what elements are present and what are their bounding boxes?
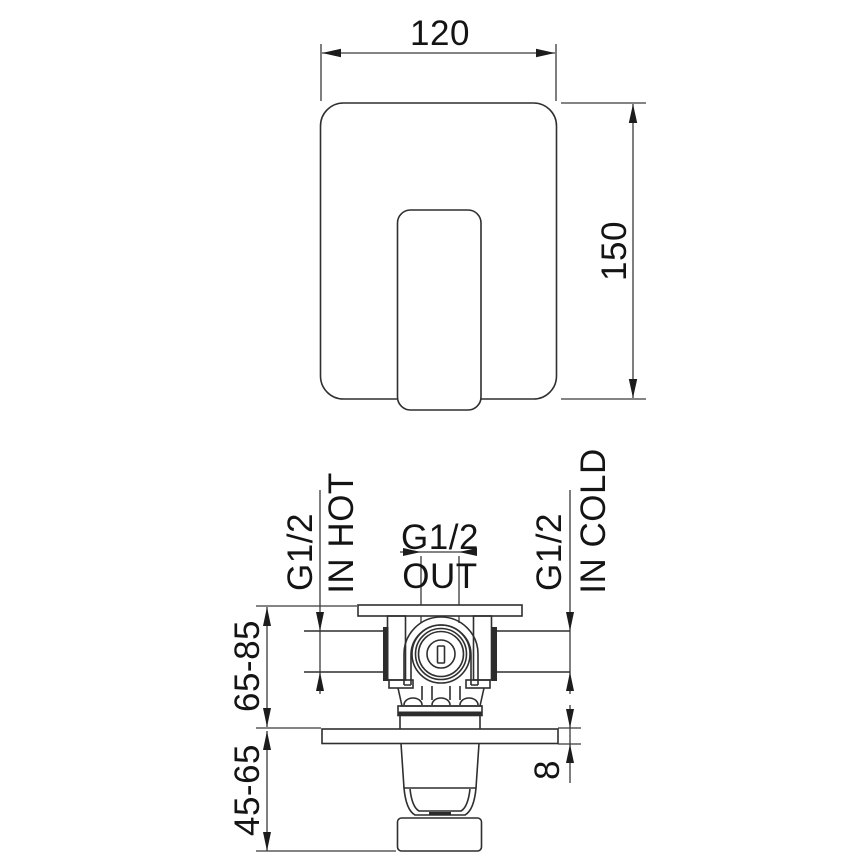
dim-height-arrow-bottom: [629, 379, 637, 398]
install-depth-extension-lines: [256, 606, 357, 728]
technical-drawing-page: 120 150 G1/2 IN HOT G1/2 OUT G1/2 IN COL…: [0, 0, 868, 868]
cartridge-stem-slot: [438, 646, 445, 663]
plate-thickness-label: 8: [528, 760, 567, 780]
dim-height-label: 150: [595, 221, 634, 281]
plate-thickness-arrow-top: [566, 709, 574, 728]
dim-width-label: 120: [410, 14, 470, 53]
trim-plate-edge: [322, 729, 558, 744]
mounting-flange: [358, 605, 522, 616]
hot-supply-pipe: [304, 631, 384, 672]
front-view: G1/2 IN HOT G1/2 OUT G1/2 IN COLD 65-85 …: [228, 448, 613, 851]
hot-inlet-arrow-top: [316, 612, 324, 631]
hot-inlet-arrow-bottom: [316, 672, 324, 691]
hot-inlet-thread-label: G1/2: [281, 513, 320, 591]
body-neck: [398, 686, 484, 706]
cold-supply-pipe: [497, 631, 570, 672]
base-seal: [399, 712, 482, 717]
hot-inlet-label: IN HOT: [322, 472, 361, 594]
install-depth-label: 65-85: [228, 620, 267, 712]
cold-connection-boss: [492, 627, 498, 681]
cartridge-inner-ring: [419, 632, 464, 677]
cold-inlet-arrow-top: [566, 612, 574, 631]
dim-width-arrow-right: [536, 49, 555, 57]
handle-projection-label: 45-65: [228, 744, 267, 836]
cartridge-middle-ring: [416, 629, 467, 680]
cold-inlet-arrow-bottom: [566, 672, 574, 691]
outlet-label: OUT: [402, 557, 477, 596]
cold-inlet-thread-label: G1/2: [530, 513, 569, 591]
handle-face: [398, 210, 482, 410]
top-view: 120 150: [321, 14, 647, 410]
left-support-post: [388, 616, 406, 680]
right-support-post: [474, 616, 492, 680]
dim-height-arrow-top: [629, 104, 637, 123]
cartridge-outer-ring: [412, 625, 470, 683]
valve-body: [358, 605, 522, 788]
mixer-valve-technical-drawing: 120 150 G1/2 IN HOT G1/2 OUT G1/2 IN COL…: [0, 0, 868, 868]
cold-inlet-label: IN COLD: [574, 448, 613, 593]
left-post-foot: [389, 680, 413, 688]
spindle: [400, 716, 480, 789]
plate-thickness-arrow-bottom: [566, 744, 574, 763]
handle-edge: [398, 788, 482, 851]
handle-end-block: [398, 818, 482, 851]
dim-width-arrow-left: [322, 49, 341, 57]
